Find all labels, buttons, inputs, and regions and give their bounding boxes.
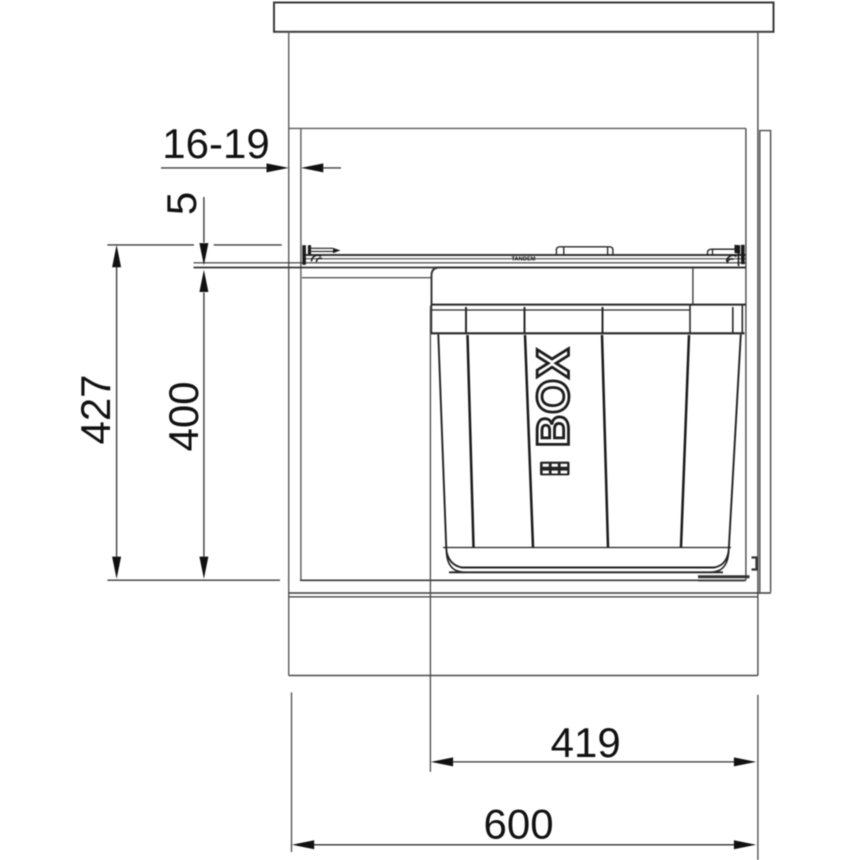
svg-text:400: 400 [160, 381, 207, 451]
svg-text:BOX: BOX [528, 347, 579, 447]
svg-text:600: 600 [484, 801, 554, 848]
svg-text:TANDEM: TANDEM [511, 257, 535, 263]
svg-text:419: 419 [551, 719, 621, 766]
svg-text:16-19: 16-19 [162, 120, 269, 167]
svg-text:427: 427 [72, 374, 119, 444]
svg-text:5: 5 [158, 192, 205, 215]
